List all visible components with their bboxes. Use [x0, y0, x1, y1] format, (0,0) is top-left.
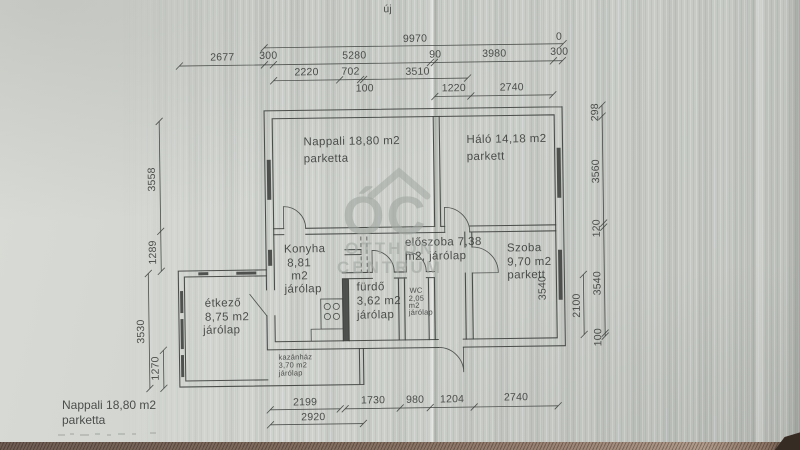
dim-3980: 3980 — [482, 47, 506, 59]
faint-scribble — [58, 433, 156, 435]
footer-room-note: Nappali 18,80 m2 — [62, 398, 156, 412]
dim-top-zero: 0 — [556, 31, 562, 43]
dim-2100: 2100 — [571, 293, 583, 317]
room-label-konyha-unit: m2 — [291, 270, 308, 282]
dim-3540-szoba: 3540 — [536, 276, 548, 300]
dim-298: 298 — [589, 103, 601, 121]
room-label-konyha: Konyha — [284, 243, 326, 256]
dim-1730: 1730 — [361, 394, 385, 406]
stove-symbol — [311, 299, 344, 341]
stove-burner — [333, 313, 339, 319]
dim-980: 980 — [406, 394, 424, 406]
room-label-halo-floor: parkett — [467, 151, 506, 164]
annotation-uj: új — [383, 3, 392, 15]
dim-120: 120 — [591, 219, 603, 237]
dim-300-right: 300 — [550, 46, 568, 58]
room-label-kazanhaz-floor: járólap — [278, 368, 303, 377]
room-label-nappali-floor: parketta — [304, 153, 349, 166]
table-edge-fabric — [0, 442, 800, 450]
dim-90: 90 — [429, 48, 441, 60]
dim-3530: 3530 — [135, 319, 147, 343]
dim-2677: 2677 — [210, 51, 234, 63]
dim-1270: 1270 — [149, 356, 161, 380]
dim-702: 702 — [341, 66, 359, 78]
dim-100-right: 100 — [592, 328, 604, 346]
photo-of-floor-plan: új 9970 0 2677 300 5280 90 3980 300 2220… — [0, 0, 800, 450]
dim-2220: 2220 — [294, 66, 318, 78]
dim-2740-bottom: 2740 — [504, 391, 528, 403]
watermark-line1: OTTHON — [345, 239, 435, 258]
dim-top-total: 9970 — [403, 33, 427, 45]
watermark-line2: CENTRUM — [337, 258, 443, 277]
room-label-szoba-area: 9,70 m2 — [507, 256, 552, 269]
room-label-wc-floor: járólap — [408, 308, 433, 317]
dim-3510: 3510 — [405, 66, 429, 78]
dim-100-top: 100 — [356, 82, 374, 94]
dim-3558: 3558 — [146, 167, 158, 191]
watermark: ÓC OTTHON CENTRUM — [337, 172, 443, 277]
footer-room-note-floor: parketta — [62, 413, 106, 427]
room-label-etkezo: étkező — [205, 297, 241, 310]
dim-1204: 1204 — [440, 393, 464, 405]
room-label-nappali: Nappali 18,80 m2 — [303, 135, 400, 148]
watermark-initials: ÓC — [343, 186, 428, 246]
room-label-furdo: fürdő — [356, 281, 384, 293]
room-label-furdo-floor: járólap — [356, 309, 394, 322]
room-label-szoba: Szoba — [507, 242, 542, 254]
dim-3540-right: 3540 — [591, 271, 603, 295]
room-label-halo: Háló 14,18 m2 — [466, 133, 546, 146]
room-label-konyha-floor: járólap — [283, 283, 321, 296]
dim-2199: 2199 — [293, 396, 317, 408]
room-label-etkezo-area: 8,75 m2 — [205, 311, 250, 324]
stove-burner — [324, 303, 330, 309]
dim-2920: 2920 — [301, 411, 325, 423]
dim-1220: 1220 — [442, 82, 466, 94]
dim-1289: 1289 — [147, 240, 159, 264]
room-label-konyha-area: 8,81 — [287, 257, 311, 269]
dim-3560: 3560 — [590, 159, 602, 183]
stove-burner — [324, 313, 330, 319]
dim-300-left: 300 — [259, 50, 277, 62]
stove-burner — [333, 303, 339, 309]
dim-5280: 5280 — [342, 49, 366, 61]
room-label-furdo-area: 3,62 m2 — [357, 295, 402, 308]
floor-plan-drawing: új 9970 0 2677 300 5280 90 3980 300 2220… — [0, 0, 800, 450]
dim-2740-top: 2740 — [500, 81, 524, 93]
room-label-etkezo-floor: járólap — [202, 324, 240, 337]
